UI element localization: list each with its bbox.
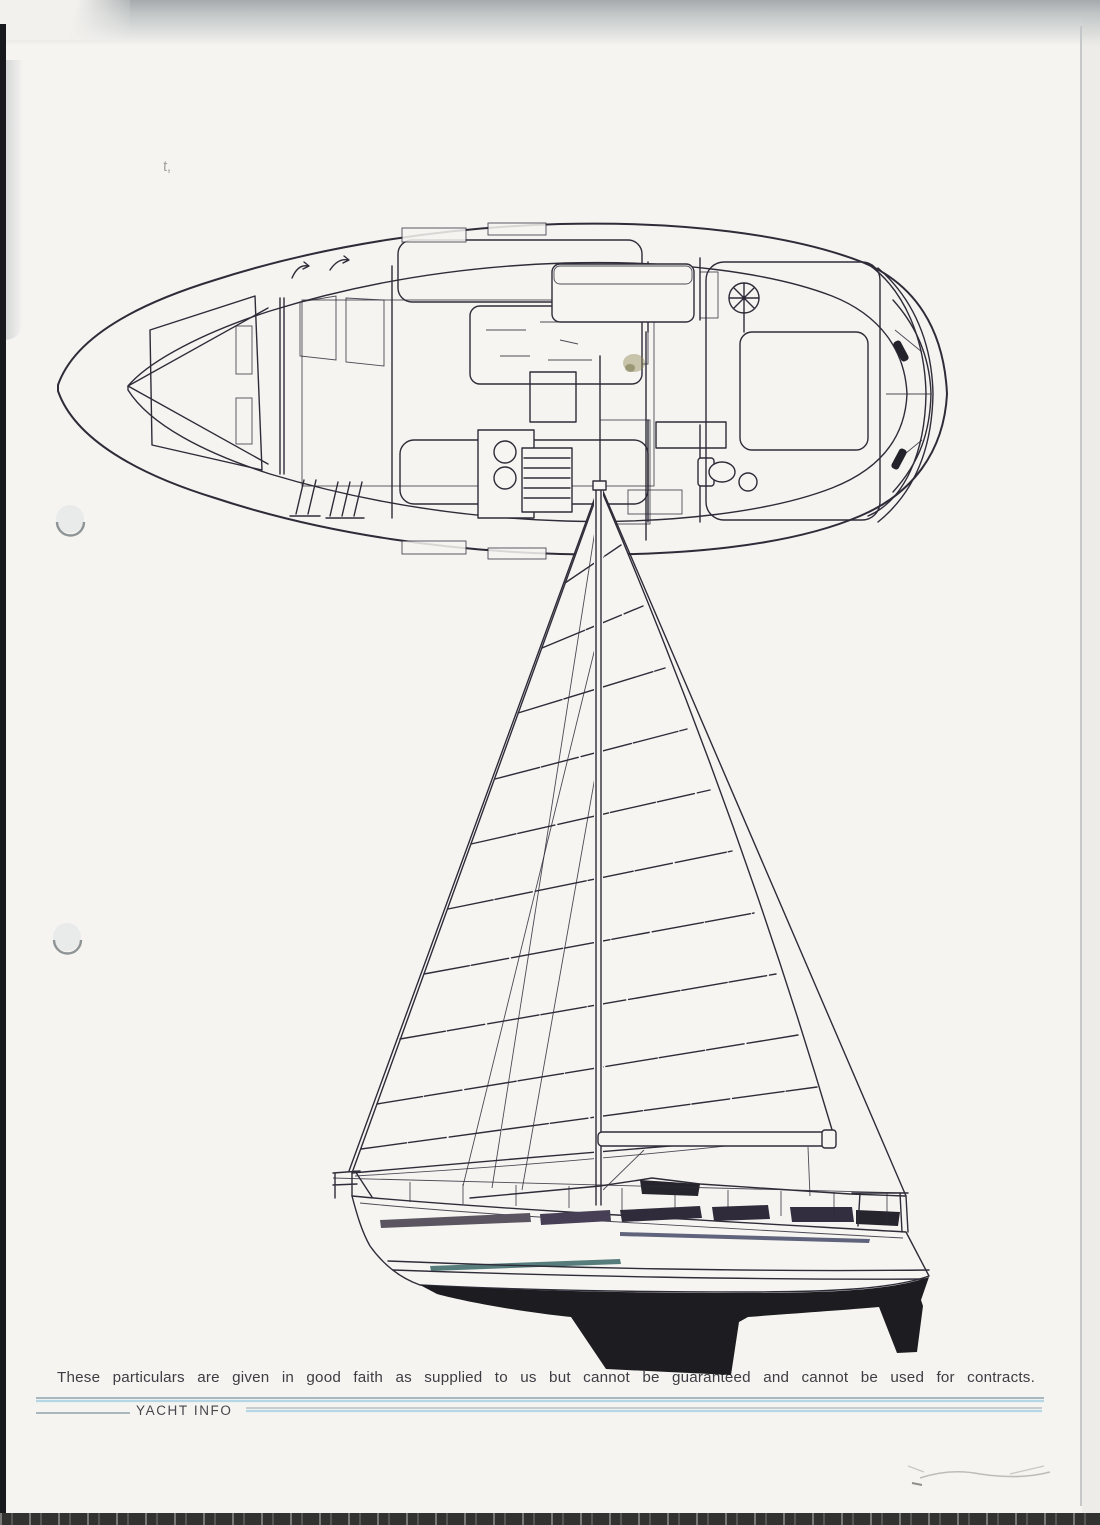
mainsheet xyxy=(808,1147,810,1196)
scanner-top-corner xyxy=(0,0,130,40)
toilet xyxy=(709,462,735,482)
scanner-top-band xyxy=(0,0,1100,46)
boom xyxy=(598,1130,836,1148)
hole-punch-top xyxy=(56,505,84,536)
page-right-margin xyxy=(1082,0,1100,1525)
page-left-shadow xyxy=(5,60,23,340)
genoa-sail xyxy=(352,487,833,1173)
footer-label: YACHT INFO xyxy=(136,1403,233,1418)
ink-smudge xyxy=(623,354,645,372)
deck-plan-drawing xyxy=(58,223,947,559)
head-compartment xyxy=(292,256,384,366)
shower-tray xyxy=(628,490,682,514)
scanned-yacht-spec-page: These particulars are given in good fait… xyxy=(0,0,1100,1525)
masthead-fitting xyxy=(593,481,606,490)
v-berth xyxy=(128,296,268,470)
hull-profile-drawing xyxy=(333,1171,929,1375)
yacht-drawing xyxy=(0,0,1100,1525)
scanner-left-edge xyxy=(0,24,6,1525)
transom-steps xyxy=(878,268,933,522)
hole-punch-bottom xyxy=(53,923,81,954)
scanner-noise-strip xyxy=(0,1513,1100,1525)
sail-plan-drawing xyxy=(349,481,906,1205)
companionway-ladder xyxy=(522,448,572,512)
galley-sink xyxy=(494,441,516,463)
page-right-edge xyxy=(1080,26,1082,1506)
aft-cabin-berth xyxy=(552,264,694,322)
lifeline xyxy=(333,1178,906,1193)
pencil-scribble xyxy=(908,1466,1050,1485)
steering-wheel-icon xyxy=(729,283,759,332)
head-sink xyxy=(739,473,757,491)
galley-sink-2 xyxy=(494,467,516,489)
